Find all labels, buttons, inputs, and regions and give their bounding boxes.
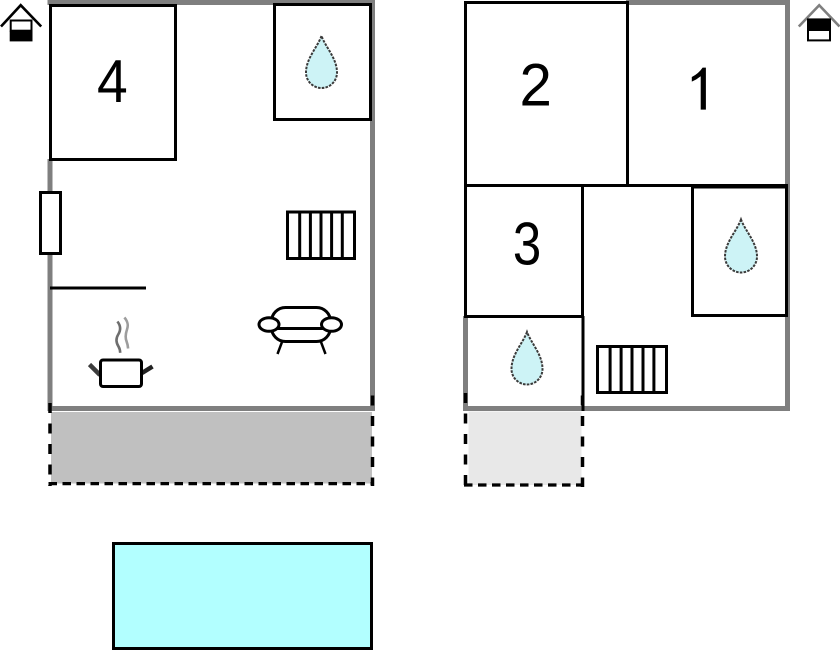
svg-text:3: 3 [513,211,541,278]
svg-text:4: 4 [97,49,128,116]
svg-text:2: 2 [520,51,552,119]
